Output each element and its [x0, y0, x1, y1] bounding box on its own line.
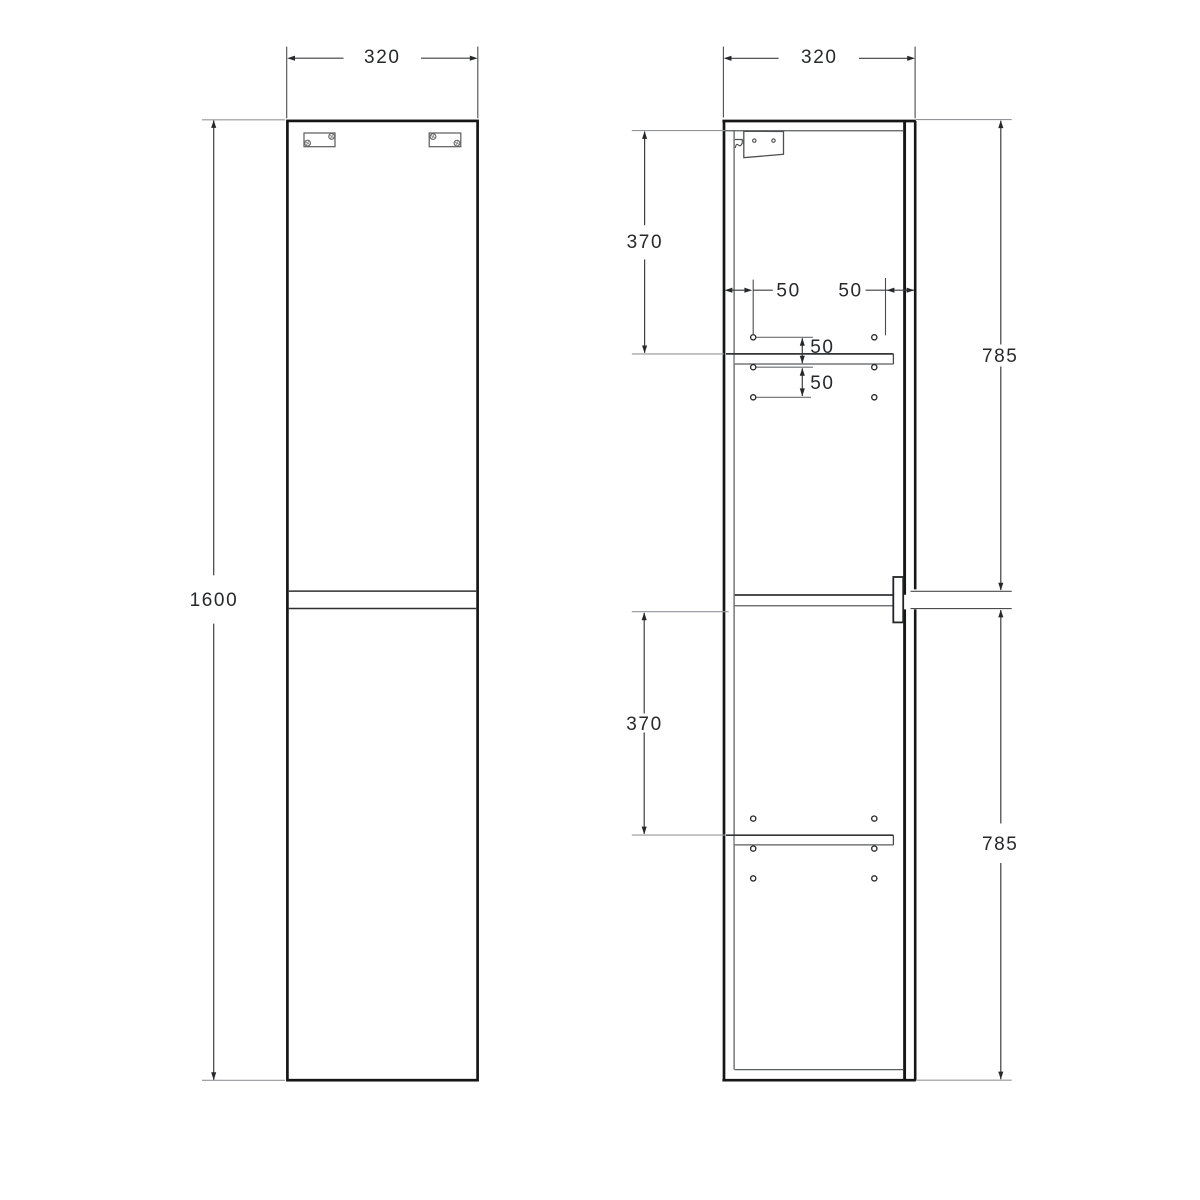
svg-text:320: 320	[801, 47, 838, 68]
svg-text:785: 785	[982, 346, 1019, 367]
svg-text:1600: 1600	[190, 590, 239, 611]
svg-text:370: 370	[626, 714, 663, 735]
svg-text:50: 50	[810, 373, 834, 394]
svg-text:370: 370	[627, 232, 664, 253]
svg-text:50: 50	[776, 281, 800, 302]
svg-text:320: 320	[364, 47, 401, 68]
svg-text:50: 50	[810, 337, 834, 358]
svg-text:785: 785	[982, 834, 1019, 855]
svg-text:50: 50	[838, 281, 862, 302]
